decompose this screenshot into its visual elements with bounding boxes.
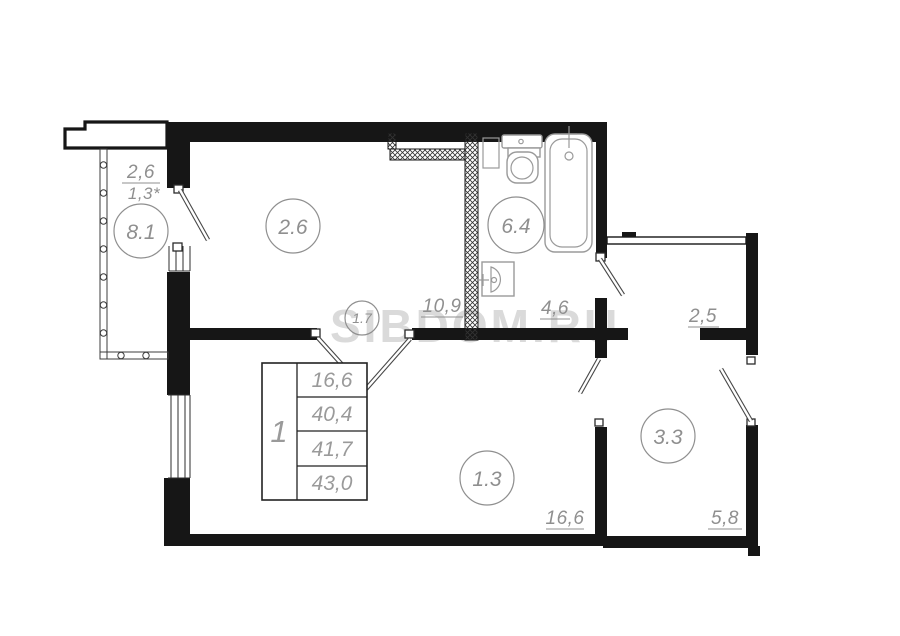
- washbasin: [477, 262, 514, 296]
- balcony-marker-label: 8.1: [126, 221, 155, 244]
- table-row-living-area: 16,6: [312, 369, 353, 392]
- door-bathroom: [596, 253, 623, 295]
- hatched-wall-stub: [388, 133, 396, 149]
- living-room-marker-label: 1.3: [472, 468, 502, 491]
- entry-area-label: 5,8: [711, 508, 739, 529]
- sink: [502, 135, 542, 148]
- room-top-area-label: 10,9: [423, 296, 462, 317]
- table-row-total-area: 43,0: [312, 472, 353, 495]
- table-row-area-3: 41,7: [312, 438, 354, 461]
- bathtub: [545, 126, 592, 252]
- canopy-wall: [65, 122, 167, 148]
- living-room-area-label: 16,6: [546, 508, 585, 529]
- balcony-area-reduced-label: 1,3*: [128, 184, 161, 203]
- door-balcony: [173, 185, 208, 251]
- hatched-wall-vertical: [465, 133, 478, 340]
- bathroom-marker-label: 6.4: [501, 215, 530, 238]
- corridor-area-label: 2,5: [688, 306, 717, 327]
- floor-plan-drawing: SIBDOM.RU: [0, 0, 900, 636]
- balcony-area-label: 2,6: [126, 162, 155, 183]
- niche-edge: [483, 138, 499, 168]
- apartment-summary-table: 1 16,6 40,4 41,7 43,0: [262, 363, 367, 500]
- entry-marker-label: 3.3: [653, 426, 683, 449]
- floor-plan-page: SIBDOM.RU: [0, 0, 900, 636]
- door-entry-left: [580, 359, 603, 426]
- table-row-area-2: 40,4: [312, 403, 353, 426]
- walls: [65, 122, 760, 556]
- door-entry-right: [721, 357, 755, 426]
- room-top-marker-label: 2.6: [277, 216, 308, 239]
- hatched-wall-closet: [390, 149, 465, 160]
- window-living-room: [168, 395, 190, 478]
- table-rooms-count: 1: [270, 414, 287, 449]
- toilet: [507, 148, 540, 183]
- bathroom-area-label: 4,6: [541, 298, 569, 319]
- bathroom-fixtures: [477, 126, 592, 296]
- hallway-marker-label: 1.7: [352, 310, 373, 326]
